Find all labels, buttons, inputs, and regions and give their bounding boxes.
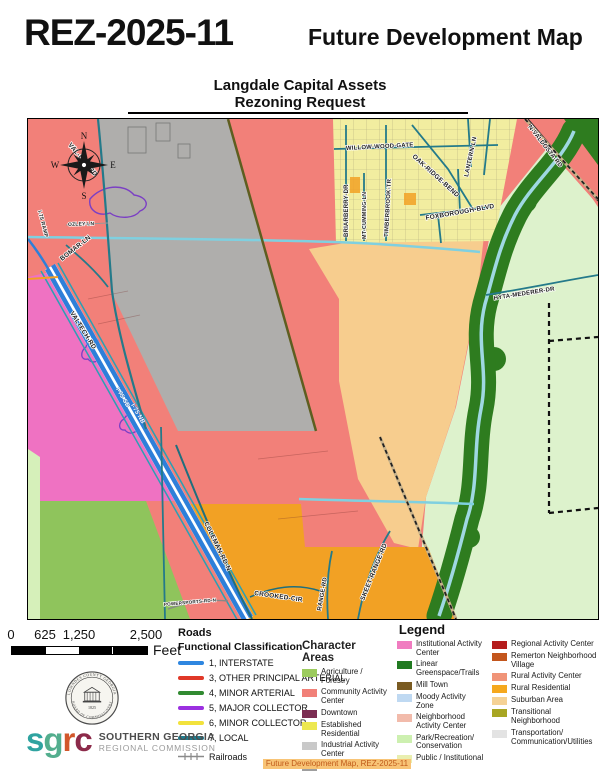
road-class-swatch xyxy=(178,676,204,680)
character-area-swatch xyxy=(302,710,317,718)
road-label-briarberry-dr: BRIARBERRY-DR xyxy=(344,184,350,237)
character-area-item: Established Residential xyxy=(302,721,390,738)
character-area-label: Downtown xyxy=(321,709,357,718)
character-area-label: Moody Activity Zone xyxy=(416,693,485,710)
character-area-item: Institutional Activity Center xyxy=(397,640,485,657)
character-area-swatch xyxy=(302,669,317,677)
compass-west: W xyxy=(51,160,60,170)
character-area-swatch xyxy=(492,697,507,705)
sgrc-letter-c: c xyxy=(74,724,91,755)
character-area-label: Transportation/ Communication/Utilities xyxy=(511,729,598,746)
scale-tick-2500: 2,500 xyxy=(130,627,163,642)
character-area-swatch xyxy=(492,673,507,681)
footnote-line1: Future Development Map, REZ-2025-11 xyxy=(263,759,411,769)
character-area-label: Mill Town xyxy=(416,681,448,690)
scale-tick-625: 625 xyxy=(34,627,56,642)
character-area-label: Park/Recreation/ Conservation xyxy=(416,734,485,751)
road-class-label: 6, MINOR COLLECTOR xyxy=(209,718,306,728)
character-area-swatch xyxy=(492,730,507,738)
road-label-ozley-ln: OZLEY-LN xyxy=(68,221,95,228)
roads-legend-item: 4, MINOR ARTERIAL xyxy=(178,688,304,698)
road-class-label: 5, MAJOR COLLECTOR xyxy=(209,703,308,713)
map-canvas[interactable]: I-75 RAMPVAL-DEL-RDOZLEY-LNBOMAR-LNVALTE… xyxy=(28,119,598,619)
character-area-item: Agriculture / Forestry xyxy=(302,668,390,685)
sgrc-wordmark: sgrc xyxy=(26,724,92,755)
character-area-item: Mill Town xyxy=(397,681,485,690)
character-area-item: Remerton Neighborhood Village xyxy=(492,652,598,669)
map-footnote: Future Development Map, REZ-2025-11 2026… xyxy=(37,753,600,776)
map-document-page: REZ-2025-11 Future Development Map Langd… xyxy=(0,0,600,776)
character-area-item: Rural Residential xyxy=(492,684,598,693)
character-area-swatch xyxy=(492,641,507,649)
character-area-swatch xyxy=(492,685,507,693)
character-area-swatch xyxy=(397,694,412,702)
character-area-item: Moody Activity Zone xyxy=(397,693,485,710)
character-area-item: Downtown xyxy=(302,709,390,718)
character-area-swatch xyxy=(492,653,507,661)
character-area-swatch xyxy=(397,641,412,649)
sgrc-letter-g: g xyxy=(43,724,62,755)
roads-legend-item: 3, OTHER PRINCIPAL ARTERIAL xyxy=(178,673,304,683)
character-area-label: Community Activity Center xyxy=(321,688,390,705)
roads-legend-item: 5, MAJOR COLLECTOR xyxy=(178,703,304,713)
character-area-label: Rural Activity Center xyxy=(511,672,582,681)
character-area-swatch xyxy=(397,714,412,722)
character-area-label: Agriculture / Forestry xyxy=(321,668,390,685)
character-area-item: Park/Recreation/ Conservation xyxy=(397,734,485,751)
character-area-swatch xyxy=(302,742,317,750)
subtitle-underline xyxy=(128,112,468,114)
road-class-swatch xyxy=(178,691,204,695)
road-class-swatch xyxy=(178,706,204,710)
case-number: REZ-2025-11 xyxy=(24,12,233,54)
sgrc-logo: sgrc SOUTHERN GEORGIA REGIONAL COMMISSIO… xyxy=(26,724,216,755)
character-area-swatch xyxy=(302,689,317,697)
zone-park-strip xyxy=(28,449,40,619)
road-label-mt-cumming-ln: MT-CUMMING-LN xyxy=(362,192,368,239)
zone-established-residential-parcels xyxy=(333,119,517,243)
sgrc-letter-r: r xyxy=(63,724,75,755)
compass-south: S xyxy=(81,191,86,201)
character-area-item: Transportation/ Communication/Utilities xyxy=(492,729,598,746)
character-area-swatch xyxy=(397,735,412,743)
seal-year: 1825 xyxy=(88,705,96,710)
sgrc-name-line1: SOUTHERN GEORGIA xyxy=(99,731,216,743)
roads-legend-title: Roads xyxy=(178,627,304,639)
character-area-item: Regional Activity Center xyxy=(492,640,598,649)
road-class-label: 1, INTERSTATE xyxy=(209,658,274,668)
character-area-label: Institutional Activity Center xyxy=(416,640,485,657)
subtitle-request: Rezoning Request xyxy=(130,94,470,111)
character-area-item: Rural Activity Center xyxy=(492,672,598,681)
character-area-label: Neighborhood Activity Center xyxy=(416,713,485,730)
character-areas-heading: Character Areas xyxy=(302,640,390,664)
character-area-label: Transitional Neighborhood xyxy=(511,708,598,725)
character-area-item: Community Activity Center xyxy=(302,688,390,705)
compass-north: N xyxy=(81,131,88,141)
scale-tick-0: 0 xyxy=(7,627,14,642)
road-class-swatch xyxy=(178,661,204,665)
map-frame[interactable]: I-75 RAMPVAL-DEL-RDOZLEY-LNBOMAR-LNVALTE… xyxy=(27,118,599,620)
character-area-label: Linear Greenspace/Trails xyxy=(416,660,485,677)
character-area-label: Rural Residential xyxy=(511,684,570,693)
character-area-item: Transitional Neighborhood xyxy=(492,708,598,725)
page-title: Future Development Map xyxy=(308,24,583,51)
scale-tick-1250: 1,250 xyxy=(63,627,96,642)
compass-east: E xyxy=(110,160,116,170)
character-area-swatch xyxy=(492,709,507,717)
legend-title: Legend xyxy=(302,622,542,637)
sgrc-letter-s: s xyxy=(26,724,43,755)
roads-legend-subtitle: Functional Classification xyxy=(178,641,304,653)
character-area-swatch xyxy=(302,722,317,730)
character-area-swatch xyxy=(397,661,412,669)
character-area-label: Regional Activity Center xyxy=(511,640,594,649)
scale-bar xyxy=(11,646,148,655)
road-class-label: 4, MINOR ARTERIAL xyxy=(209,688,295,698)
scale-unit: Feet xyxy=(153,642,181,658)
character-area-label: Suburban Area xyxy=(511,696,563,705)
sgrc-name-line2: REGIONAL COMMISSION xyxy=(99,743,216,753)
character-area-label: Remerton Neighborhood Village xyxy=(511,652,598,669)
character-area-label: Established Residential xyxy=(321,721,390,738)
character-area-swatch xyxy=(397,682,412,690)
parcel-orange-1 xyxy=(350,177,360,193)
character-area-item: Neighborhood Activity Center xyxy=(397,713,485,730)
roads-legend-item: 1, INTERSTATE xyxy=(178,658,304,668)
subtitle-applicant: Langdale Capital Assets xyxy=(130,77,470,94)
character-area-item: Suburban Area xyxy=(492,696,598,705)
parcel-orange-2 xyxy=(404,193,416,205)
character-area-item: Linear Greenspace/Trails xyxy=(397,660,485,677)
